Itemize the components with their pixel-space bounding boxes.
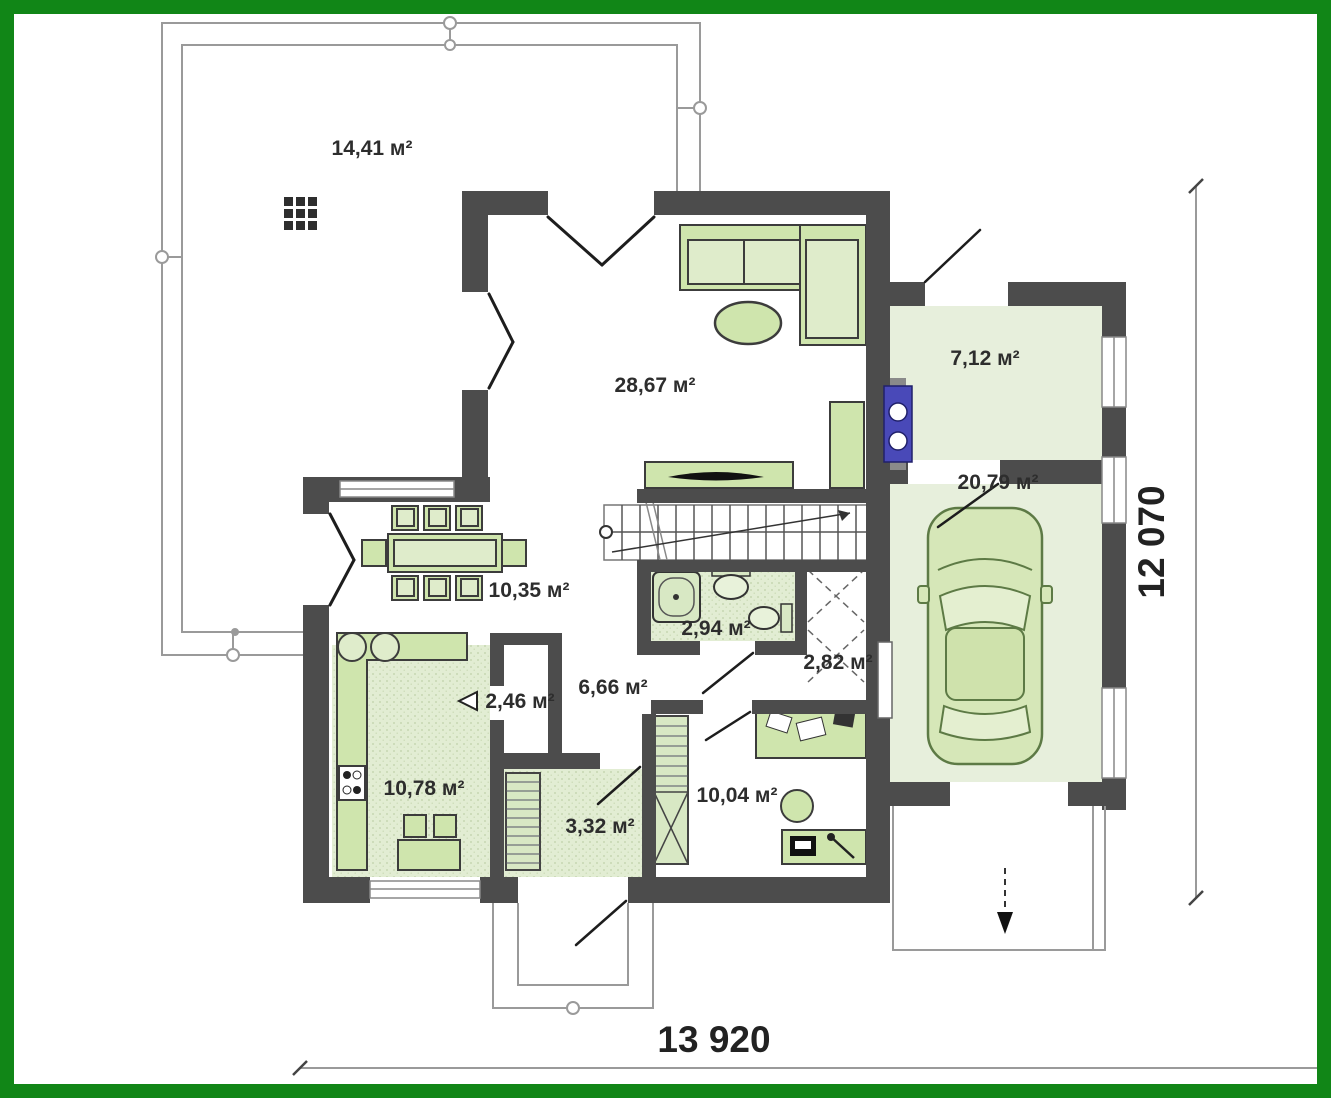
living-cabinet [830, 402, 864, 488]
car [918, 508, 1052, 764]
room-label-office: 10,04 м² [697, 784, 778, 807]
dimension-bottom-label: 13 920 [657, 1019, 770, 1060]
dimension-right-label: 12 070 [1131, 485, 1172, 598]
room-label-bathroom: 2,94 м² [681, 617, 750, 640]
room-label-kitchen: 10,78 м² [384, 777, 465, 800]
dimension-bottom: 13 920 [293, 1019, 1322, 1075]
car-mirror [1041, 586, 1052, 603]
stair-newel-post [600, 526, 612, 538]
floor-plan-page: 12 070 13 920 14,41 м² 28,67 м² 7,12 м² … [0, 0, 1331, 1098]
room-label-wardrobe: 2,82 м² [803, 651, 872, 674]
room-label-living: 28,67 м² [615, 374, 696, 397]
office-side-desk [782, 830, 866, 864]
dimension-right: 12 070 [1131, 179, 1203, 905]
toilet-icon [749, 604, 792, 632]
technical-floor [890, 306, 1102, 460]
garage-niche [878, 642, 892, 718]
technical-entry-door-leaf [925, 230, 980, 282]
coffee-table [715, 302, 781, 344]
room-label-terrace: 14,41 м² [332, 137, 413, 160]
room-label-dining: 10,35 м² [489, 579, 570, 602]
boiler-icon [884, 378, 912, 470]
rear-door-leaf [576, 901, 626, 945]
room-label-pantry: 2,46 м² [485, 690, 554, 713]
room-label-laundry: 3,32 м² [565, 815, 634, 838]
stove-icon [339, 766, 365, 800]
tv-stand [645, 462, 793, 488]
room-label-technical: 7,12 м² [950, 347, 1019, 370]
car-mirror [918, 586, 929, 603]
office-closet [654, 716, 688, 864]
office-stool [781, 790, 813, 822]
floor-plan-drawing: 12 070 13 920 14,41 м² 28,67 м² 7,12 м² … [0, 0, 1331, 1098]
terrace-column-icon [284, 197, 317, 230]
garage-apron [893, 806, 1105, 950]
staircase [600, 498, 868, 568]
rear-porch [493, 903, 653, 1014]
laundry-closet [506, 773, 540, 870]
driveway-down-arrow-icon [997, 912, 1013, 934]
room-label-garage: 20,79 м² [958, 471, 1039, 494]
sink-bowl [371, 633, 399, 661]
room-label-hall: 6,66 м² [578, 676, 647, 699]
sink-bowl [338, 633, 366, 661]
